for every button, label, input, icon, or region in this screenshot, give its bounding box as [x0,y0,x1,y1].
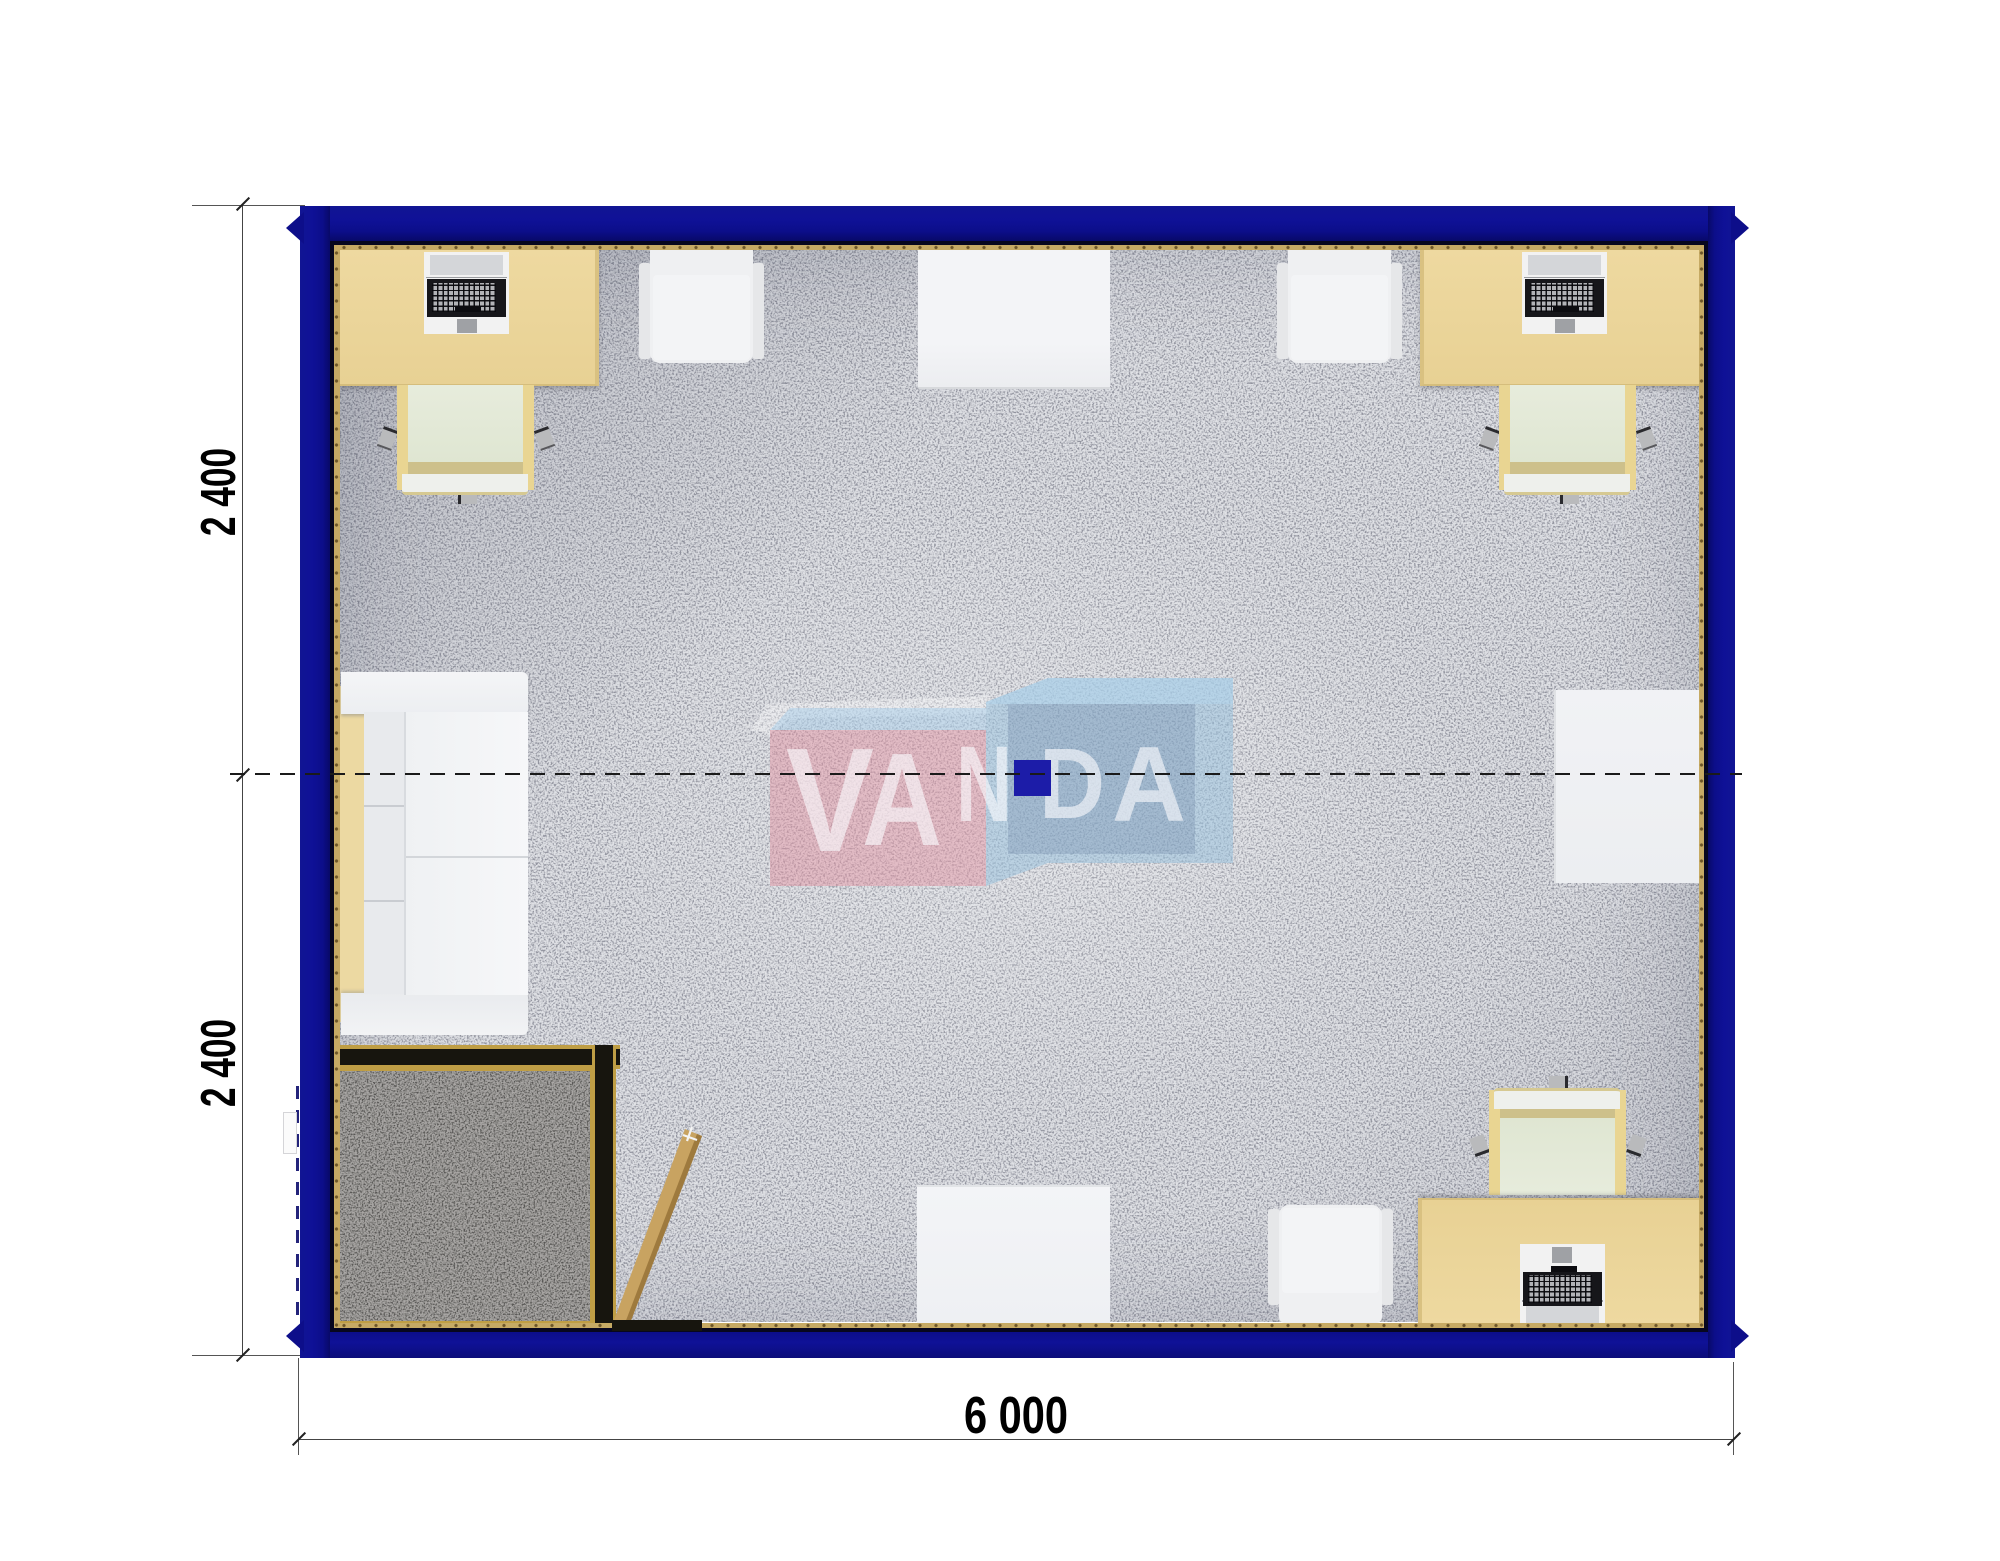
svg-text:A: A [1112,724,1186,844]
svg-text:A: A [862,726,942,873]
svg-text:N: N [956,723,1012,844]
svg-text:V: V [786,718,874,883]
